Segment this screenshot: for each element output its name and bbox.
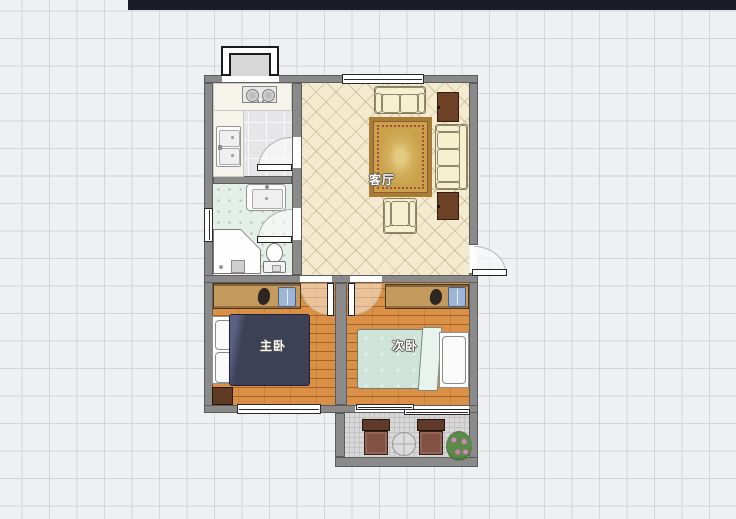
chair-seat bbox=[364, 431, 388, 455]
showerhead-icon bbox=[231, 260, 245, 273]
armchair-icon[interactable] bbox=[383, 198, 417, 234]
chair-back bbox=[417, 419, 445, 431]
opening-bath-door bbox=[293, 208, 301, 240]
potted-plant-icon[interactable] bbox=[446, 431, 472, 461]
sofa-cushion bbox=[400, 94, 418, 113]
toilet-tank-icon[interactable] bbox=[263, 261, 286, 273]
two-seat-sofa-icon[interactable] bbox=[374, 86, 426, 114]
balcony-sliding-panel-right[interactable] bbox=[404, 409, 470, 415]
chair-back bbox=[362, 419, 390, 431]
armchair-arm-right bbox=[409, 201, 416, 227]
opening-kitchen-door bbox=[293, 137, 301, 168]
sink-drain bbox=[231, 136, 234, 139]
cabinet-knob bbox=[437, 205, 440, 208]
basin-drain bbox=[265, 197, 268, 200]
stove-knob bbox=[257, 100, 259, 102]
wall-kitchen-living[interactable] bbox=[292, 83, 302, 275]
bay-window-glass bbox=[229, 53, 271, 76]
opening-second-door bbox=[350, 276, 382, 282]
faucet-icon bbox=[265, 185, 269, 189]
bathroom-door-leaf[interactable] bbox=[257, 236, 292, 243]
jacket-icon bbox=[256, 287, 271, 306]
nightstand-icon[interactable] bbox=[212, 387, 233, 405]
wall-right-upper[interactable] bbox=[469, 83, 478, 245]
sink-drain bbox=[231, 154, 234, 157]
sofa-arm-left bbox=[375, 93, 382, 113]
wall-bedroom-divider[interactable] bbox=[335, 283, 347, 405]
floorplan-canvas[interactable]: 客厅 主卧 次卧 bbox=[0, 0, 736, 519]
stove-icon[interactable] bbox=[242, 86, 277, 103]
living-room-window[interactable] bbox=[342, 74, 424, 84]
opening-bay-window bbox=[222, 76, 279, 82]
shirt-icon bbox=[448, 287, 466, 307]
opening-master-door bbox=[300, 276, 332, 282]
second-bedroom-label: 次卧 bbox=[387, 338, 423, 354]
sofa-back bbox=[459, 125, 467, 189]
balcony-chair-left-icon[interactable] bbox=[362, 419, 390, 456]
second-door-leaf[interactable] bbox=[348, 283, 355, 316]
side-cabinet-icon[interactable] bbox=[437, 92, 459, 122]
sofa-arm-top bbox=[436, 125, 460, 132]
wall-balcony-left[interactable] bbox=[335, 413, 345, 457]
wall-kitchen-bath-divider[interactable] bbox=[213, 176, 292, 184]
balcony-table-icon[interactable] bbox=[392, 432, 416, 456]
bed-pillow bbox=[442, 336, 466, 384]
app-toolbar-edge bbox=[128, 0, 736, 10]
faucet-icon bbox=[218, 145, 222, 150]
wall-living-bedrooms[interactable] bbox=[204, 275, 478, 283]
second-wardrobe-icon[interactable] bbox=[385, 284, 469, 309]
bathroom-window[interactable] bbox=[204, 208, 213, 242]
sofa-cushion bbox=[437, 166, 460, 182]
shower-drain bbox=[219, 265, 223, 269]
jacket-icon bbox=[428, 288, 443, 306]
balcony-chair-right-icon[interactable] bbox=[417, 419, 445, 456]
master-bedroom-label: 主卧 bbox=[255, 338, 291, 354]
kitchen-sink-icon[interactable] bbox=[216, 126, 241, 167]
sink-basin-upper bbox=[219, 130, 240, 147]
cabinet-knob bbox=[437, 106, 440, 109]
sink-basin-lower bbox=[219, 148, 240, 165]
armchair-arm-left bbox=[384, 201, 391, 227]
second-bed-icon[interactable] bbox=[357, 327, 469, 391]
chair-seat bbox=[419, 431, 443, 455]
tv-cabinet-icon[interactable] bbox=[437, 192, 459, 220]
sofa-cushion bbox=[437, 149, 460, 166]
master-bedroom-window[interactable] bbox=[237, 404, 321, 414]
three-seat-sofa-icon[interactable] bbox=[435, 124, 468, 190]
living-room-label: 客厅 bbox=[364, 172, 400, 188]
kitchen-door-leaf[interactable] bbox=[257, 164, 292, 171]
shirt-icon bbox=[278, 287, 296, 307]
master-wardrobe-icon[interactable] bbox=[213, 283, 301, 309]
stove-knob bbox=[262, 100, 264, 102]
bathroom-sink-icon[interactable] bbox=[246, 184, 286, 211]
armchair-cushion bbox=[391, 201, 409, 226]
toilet-bowl-icon[interactable] bbox=[266, 243, 283, 263]
sofa-cushion bbox=[382, 94, 400, 113]
sofa-arm-right bbox=[418, 93, 425, 113]
entry-door-leaf[interactable] bbox=[472, 269, 507, 276]
toilet-flush-button bbox=[272, 265, 281, 272]
sofa-arm-bottom bbox=[436, 182, 460, 189]
master-door-leaf[interactable] bbox=[327, 283, 334, 316]
sofa-cushion bbox=[437, 132, 460, 149]
